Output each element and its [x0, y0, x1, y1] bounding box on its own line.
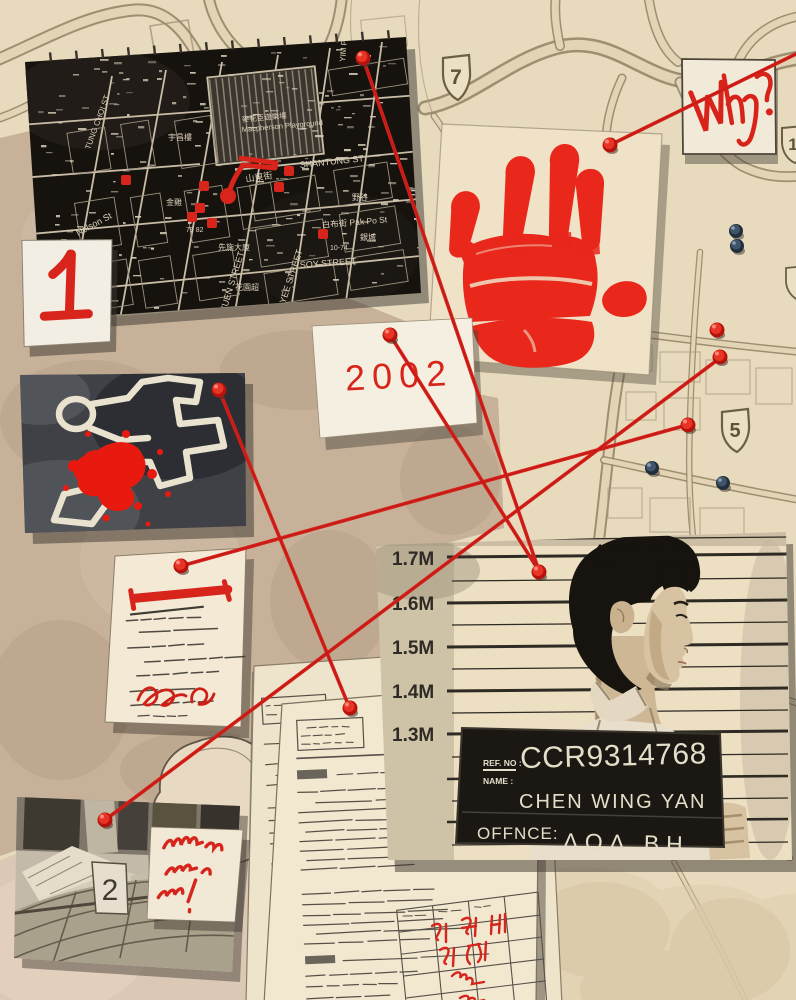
- svg-text:CCR9314768: CCR9314768: [520, 737, 708, 775]
- svg-text:1.7M: 1.7M: [392, 549, 434, 570]
- svg-text:2: 2: [102, 874, 119, 907]
- svg-text:花園超: 花園超: [235, 282, 259, 292]
- svg-text:宇昌樓: 宇昌樓: [168, 132, 192, 142]
- svg-text:79 82: 79 82: [186, 227, 204, 234]
- svg-text:1.6M: 1.6M: [392, 594, 434, 615]
- svg-text:CHEN WING YAN: CHEN WING YAN: [519, 791, 707, 813]
- svg-text:REF. NO :: REF. NO :: [483, 758, 522, 768]
- svg-text:1.4M: 1.4M: [392, 682, 434, 703]
- svg-text:NAME :: NAME :: [483, 776, 513, 786]
- svg-text:1.3M: 1.3M: [392, 725, 434, 746]
- svg-text:10-74: 10-74: [330, 245, 348, 252]
- svg-text:先施大廈: 先施大廈: [218, 242, 250, 252]
- svg-text:1.5M: 1.5M: [392, 638, 434, 659]
- svg-text:1: 1: [788, 135, 796, 154]
- svg-text:銀城: 銀城: [360, 232, 376, 242]
- svg-text:OFFNCE:: OFFNCE:: [477, 824, 559, 843]
- svg-text:2002: 2002: [344, 352, 454, 399]
- svg-text:ΛΟΛ ΒΗ: ΛΟΛ ΒΗ: [563, 828, 690, 857]
- svg-text:野谷: 野谷: [352, 193, 368, 202]
- svg-text:金雞: 金雞: [166, 197, 182, 207]
- svg-text:7: 7: [450, 66, 462, 89]
- svg-text:5: 5: [729, 420, 740, 442]
